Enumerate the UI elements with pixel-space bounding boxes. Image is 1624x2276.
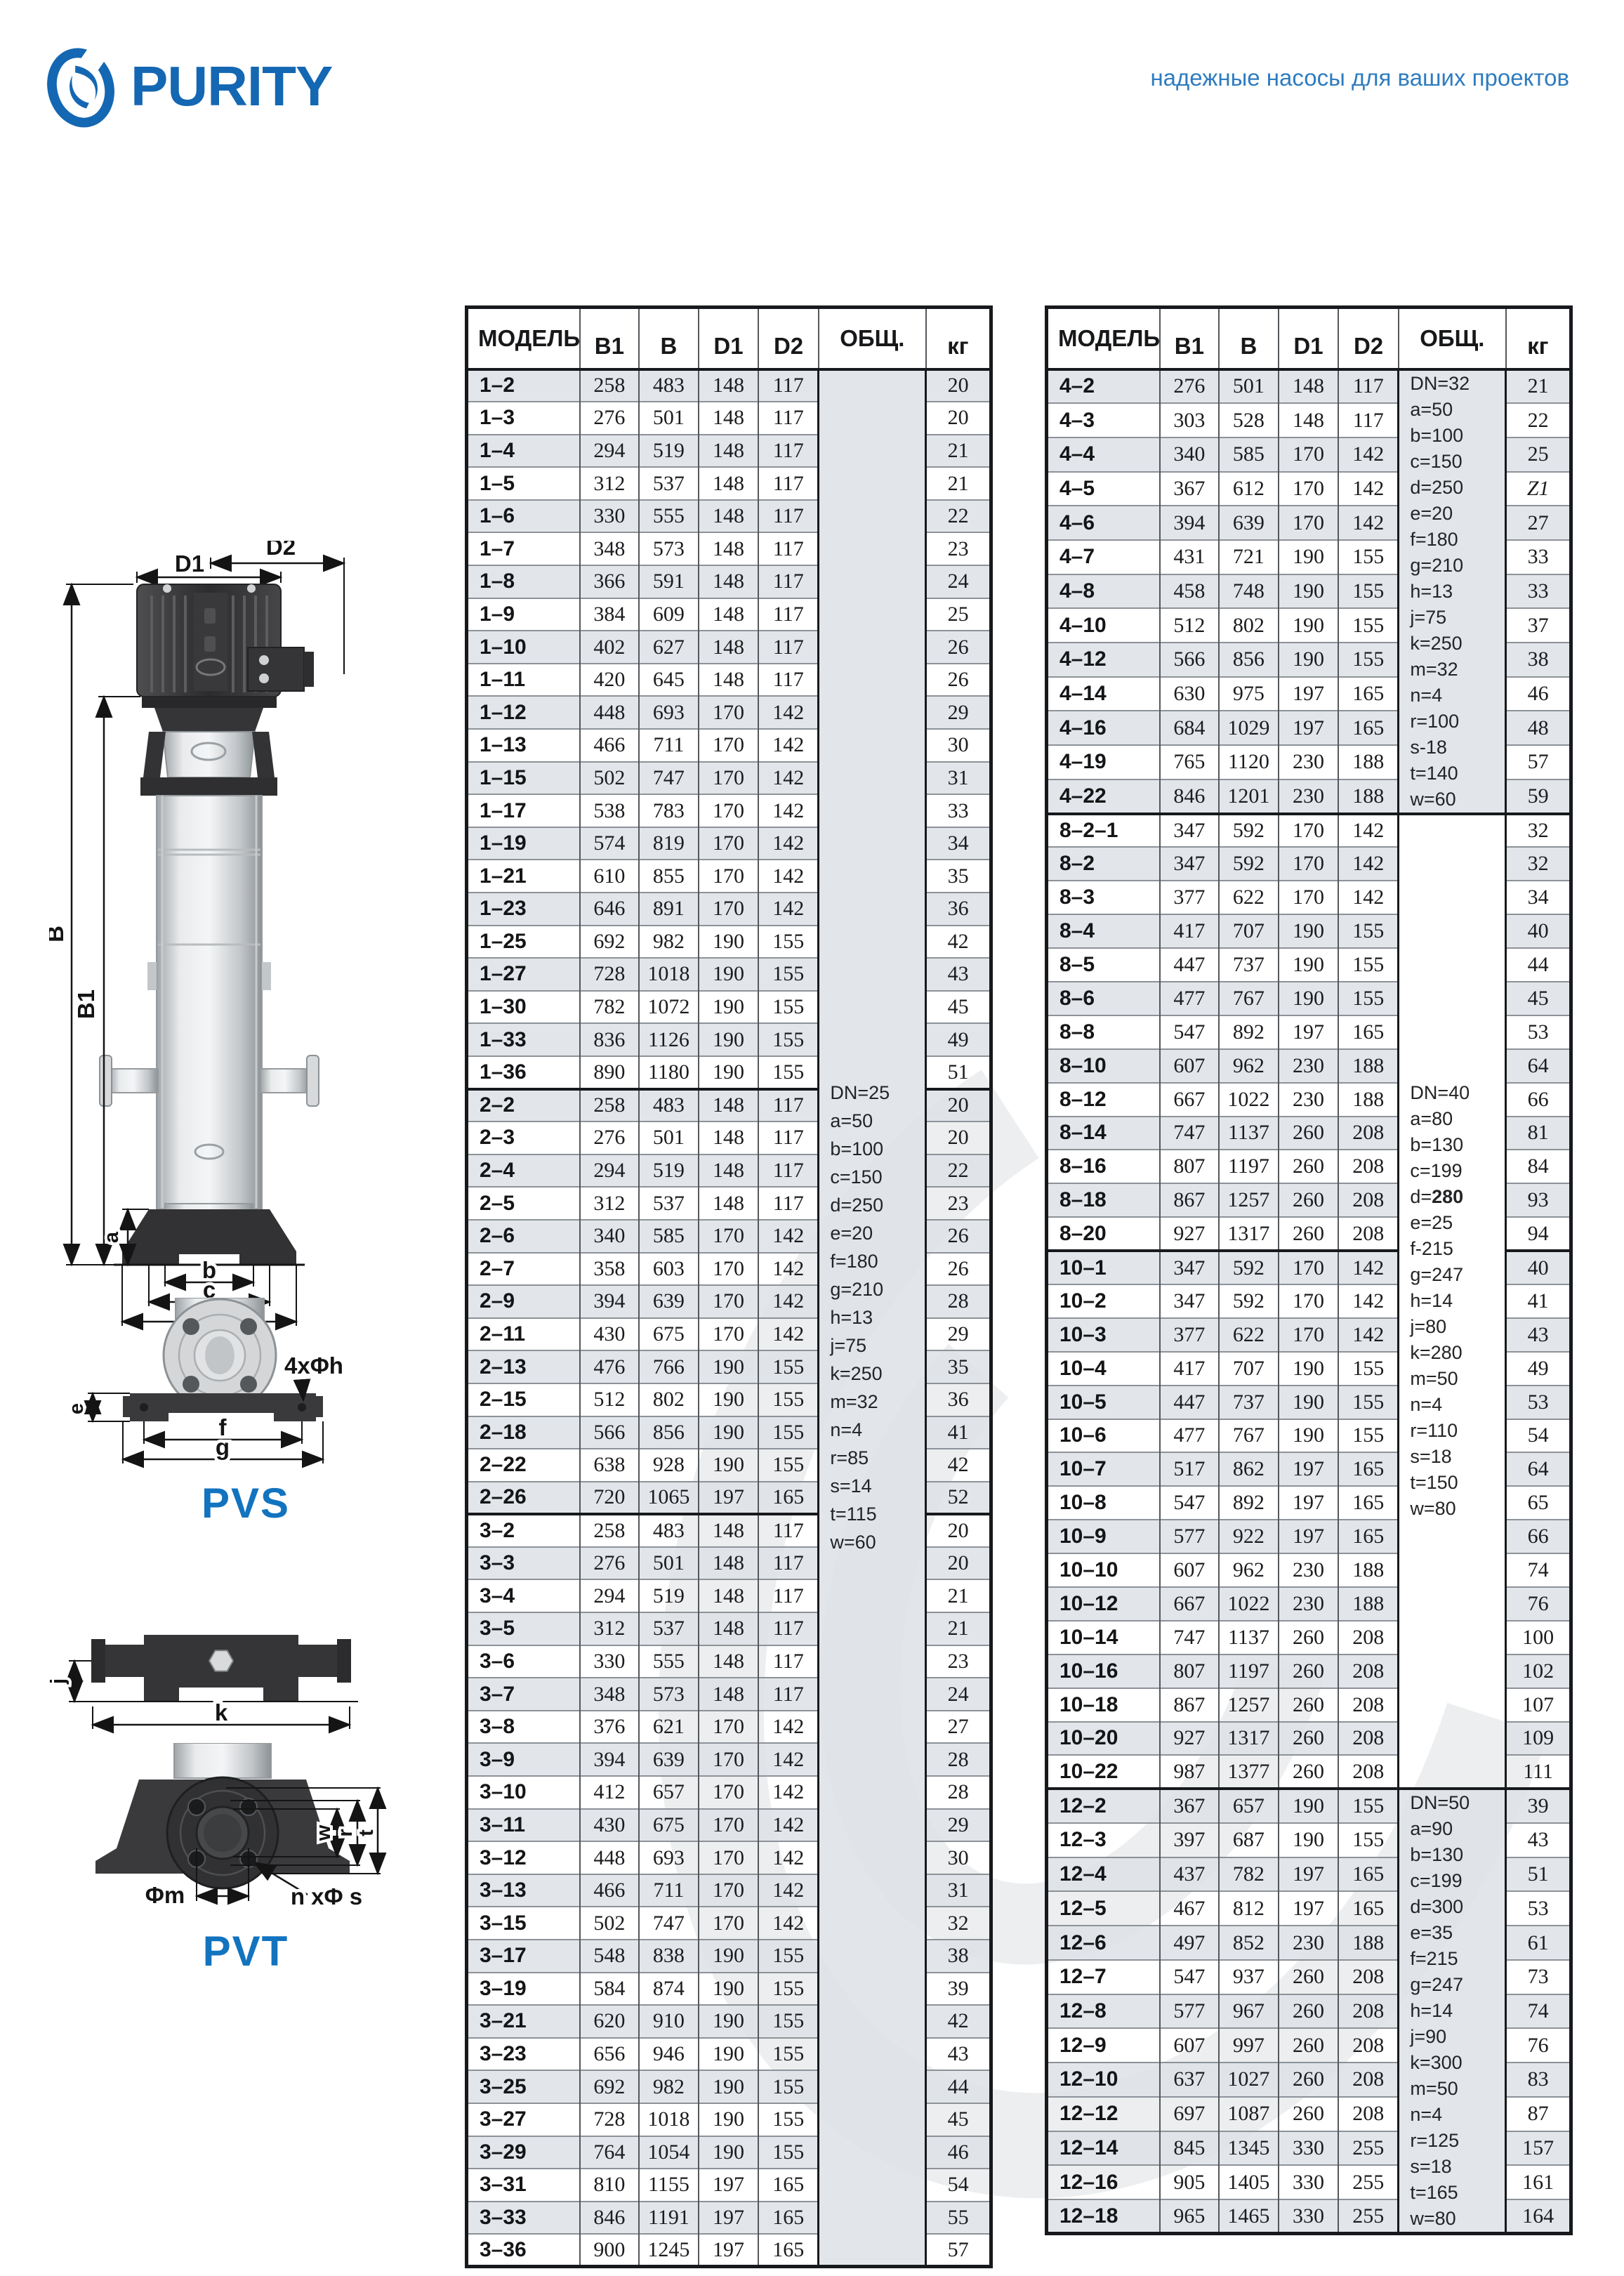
- value-cell: 170: [699, 860, 759, 893]
- value-cell: 802: [639, 1383, 699, 1416]
- value-cell: 190: [1279, 1789, 1339, 1823]
- value-cell: 348: [580, 532, 640, 565]
- model-cell: 12–14: [1047, 2131, 1160, 2166]
- table-row: 1–2258483148117DN=25a=50b=100c=150d=250e…: [467, 369, 991, 402]
- value-cell: 376: [580, 1711, 640, 1744]
- value-cell: 566: [580, 1416, 640, 1449]
- value-cell: 502: [580, 1907, 640, 1940]
- pvt-flange-view-diagram: w r t Φm n xΦ s: [49, 1743, 442, 1926]
- value-cell: 155: [1338, 540, 1399, 574]
- value-cell: 170: [1279, 506, 1339, 540]
- kg-cell: 20: [926, 1547, 991, 1580]
- value-cell: 537: [639, 1187, 699, 1220]
- dim-phi-m: Φm: [145, 1882, 185, 1908]
- value-cell: 170: [699, 827, 759, 860]
- value-cell: 155: [758, 1973, 819, 2006]
- value-cell: 230: [1279, 745, 1339, 780]
- value-cell: 1072: [639, 991, 699, 1024]
- value-cell: 394: [580, 1285, 640, 1318]
- value-cell: 190: [699, 2103, 759, 2136]
- value-cell: 890: [580, 1056, 640, 1089]
- value-cell: 687: [1219, 1823, 1279, 1857]
- model-cell: 3–21: [467, 2005, 580, 2038]
- column-header: D2: [1338, 308, 1399, 369]
- value-cell: 258: [580, 1514, 640, 1547]
- model-cell: 8–10: [1047, 1049, 1160, 1083]
- value-cell: 190: [1279, 540, 1339, 574]
- model-cell: 10–12: [1047, 1587, 1160, 1621]
- value-cell: 255: [1338, 2165, 1399, 2199]
- value-cell: 501: [639, 1121, 699, 1155]
- kg-cell: 40: [1506, 1251, 1571, 1284]
- model-cell: 1–13: [467, 729, 580, 762]
- model-cell: 8–12: [1047, 1083, 1160, 1117]
- header-row: МОДЕЛЬB1BD1D2ОБЩ.кг: [1047, 308, 1571, 369]
- value-cell: 501: [639, 402, 699, 435]
- value-cell: 170: [699, 1841, 759, 1874]
- model-cell: 3–2: [467, 1514, 580, 1547]
- dim-e: e: [65, 1403, 88, 1414]
- value-cell: 208: [1338, 1150, 1399, 1183]
- value-cell: 142: [1338, 1318, 1399, 1352]
- value-cell: 155: [758, 1056, 819, 1089]
- value-cell: 609: [639, 598, 699, 631]
- value-cell: 555: [639, 500, 699, 533]
- model-cell: 8–4: [1047, 914, 1160, 948]
- value-cell: 148: [699, 467, 759, 500]
- column-header: B: [1219, 308, 1279, 369]
- column-header: D1: [1279, 308, 1339, 369]
- note-line: j=75: [830, 1331, 925, 1360]
- kg-cell: 59: [1506, 780, 1571, 814]
- kg-cell: 40: [1506, 914, 1571, 948]
- model-cell: 10–16: [1047, 1655, 1160, 1688]
- value-cell: 148: [699, 500, 759, 533]
- value-cell: 1345: [1219, 2131, 1279, 2166]
- model-cell: 3–13: [467, 1874, 580, 1907]
- value-cell: 260: [1279, 1217, 1339, 1251]
- value-cell: 188: [1338, 745, 1399, 780]
- value-cell: 142: [1338, 814, 1399, 848]
- kg-cell: 41: [1506, 1284, 1571, 1318]
- kg-cell: 65: [1506, 1486, 1571, 1520]
- value-cell: 155: [1338, 982, 1399, 1015]
- value-cell: 838: [639, 1940, 699, 1973]
- model-cell: 1–25: [467, 926, 580, 959]
- value-cell: 394: [1160, 506, 1220, 540]
- value-cell: 845: [1160, 2131, 1220, 2166]
- note-line: k=300: [1410, 2050, 1505, 2076]
- kg-cell: 49: [926, 1023, 991, 1056]
- value-cell: 142: [758, 827, 819, 860]
- value-cell: 165: [1338, 677, 1399, 711]
- model-cell: 8–20: [1047, 1217, 1160, 1251]
- value-cell: 622: [1219, 881, 1279, 914]
- column-header: B: [639, 308, 699, 369]
- model-cell: 8–3: [1047, 881, 1160, 914]
- note-line: n=4: [1410, 2102, 1505, 2128]
- kg-cell: 23: [926, 1187, 991, 1220]
- model-cell: 1–21: [467, 860, 580, 893]
- dimensions-note-cell: DN=40a=80b=130c=199d=280e=25f-215g=247h=…: [1399, 814, 1506, 1789]
- kg-cell: 84: [1506, 1150, 1571, 1183]
- value-cell: 447: [1160, 1386, 1220, 1419]
- value-cell: 155: [1338, 1352, 1399, 1386]
- value-cell: 170: [699, 1318, 759, 1351]
- value-cell: 855: [639, 860, 699, 893]
- model-cell: 2–13: [467, 1350, 580, 1383]
- dimensions-note-cell: DN=50a=90b=130c=199d=300e=35f=215g=247h=…: [1399, 1789, 1506, 2234]
- model-cell: 2–15: [467, 1383, 580, 1416]
- kg-cell: 81: [1506, 1117, 1571, 1150]
- note-line: d=300: [1410, 1894, 1505, 1920]
- value-cell: 170: [699, 794, 759, 827]
- model-cell: 4–7: [1047, 540, 1160, 574]
- note-line: e=20: [830, 1219, 925, 1247]
- value-cell: 117: [758, 532, 819, 565]
- model-cell: 12–3: [1047, 1823, 1160, 1857]
- model-cell: 10–9: [1047, 1520, 1160, 1553]
- value-cell: 312: [580, 1187, 640, 1220]
- dim-n-phi-s: n xΦ s: [291, 1883, 362, 1909]
- value-cell: 294: [580, 435, 640, 468]
- value-cell: 430: [580, 1809, 640, 1842]
- value-cell: 693: [639, 1841, 699, 1874]
- value-cell: 117: [758, 1678, 819, 1711]
- value-cell: 170: [1279, 1318, 1339, 1352]
- value-cell: 512: [1160, 608, 1220, 643]
- column-header: ОБЩ.: [819, 308, 926, 369]
- value-cell: 721: [1219, 540, 1279, 574]
- value-cell: 197: [1279, 1015, 1339, 1049]
- model-cell: 8–5: [1047, 948, 1160, 982]
- dimensions-note-cell: DN=25a=50b=100c=150d=250e=20f=180g=210h=…: [819, 369, 926, 2267]
- kg-cell: 53: [1506, 1015, 1571, 1049]
- value-cell: 117: [758, 402, 819, 435]
- kg-cell: 21: [926, 467, 991, 500]
- value-cell: 190: [1279, 982, 1339, 1015]
- kg-cell: 31: [926, 1874, 991, 1907]
- column-header: D1: [699, 308, 759, 369]
- value-cell: 155: [1338, 914, 1399, 948]
- value-cell: 483: [639, 369, 699, 402]
- value-cell: 197: [699, 2169, 759, 2202]
- kg-cell: 61: [1506, 1926, 1571, 1960]
- value-cell: 448: [580, 1841, 640, 1874]
- value-cell: 728: [580, 958, 640, 991]
- value-cell: 467: [1160, 1891, 1220, 1926]
- value-cell: 347: [1160, 847, 1220, 881]
- value-cell: 142: [758, 1743, 819, 1776]
- value-cell: 190: [699, 2136, 759, 2169]
- value-cell: 260: [1279, 1621, 1339, 1655]
- kg-cell: 22: [926, 1155, 991, 1188]
- kg-cell: 39: [1506, 1789, 1571, 1823]
- note-line: f-215: [1410, 1236, 1505, 1262]
- note-line: DN=25: [830, 1079, 925, 1107]
- note-line: k=250: [830, 1360, 925, 1388]
- value-cell: 620: [580, 2005, 640, 2038]
- value-cell: 867: [1160, 1688, 1220, 1722]
- value-cell: 1465: [1219, 2199, 1279, 2234]
- value-cell: 260: [1279, 1755, 1339, 1789]
- kg-cell: 102: [1506, 1655, 1571, 1688]
- value-cell: 165: [1338, 1520, 1399, 1553]
- model-cell: 2–11: [467, 1318, 580, 1351]
- value-cell: 190: [699, 1023, 759, 1056]
- value-cell: 675: [639, 1318, 699, 1351]
- value-cell: 208: [1338, 2097, 1399, 2131]
- value-cell: 747: [1160, 1117, 1220, 1150]
- value-cell: 519: [639, 435, 699, 468]
- note-line: n=4: [1410, 1392, 1505, 1418]
- kg-cell: 42: [926, 1449, 991, 1482]
- value-cell: 170: [699, 1809, 759, 1842]
- column-header: МОДЕЛЬ: [1047, 308, 1160, 369]
- value-cell: 190: [699, 2070, 759, 2103]
- kg-cell: 34: [926, 827, 991, 860]
- right-spec-table: МОДЕЛЬB1BD1D2ОБЩ.кг4–2276501148117DN=32a…: [1045, 305, 1573, 2235]
- value-cell: 155: [758, 2136, 819, 2169]
- kg-cell: 66: [1506, 1520, 1571, 1553]
- value-cell: 148: [699, 402, 759, 435]
- value-cell: 142: [1338, 438, 1399, 472]
- value-cell: 190: [699, 1350, 759, 1383]
- value-cell: 190: [699, 1940, 759, 1973]
- value-cell: 190: [699, 1056, 759, 1089]
- note-line: f=180: [830, 1247, 925, 1275]
- dimensions-note: DN=50a=90b=130c=199d=300e=35f=215g=247h=…: [1399, 1790, 1505, 2232]
- value-cell: 330: [1279, 2131, 1339, 2166]
- note-line: f=215: [1410, 1946, 1505, 1972]
- value-cell: 255: [1338, 2199, 1399, 2234]
- value-cell: 573: [639, 532, 699, 565]
- value-cell: 142: [758, 696, 819, 729]
- value-cell: 190: [1279, 948, 1339, 982]
- note-line: s=18: [1410, 1444, 1505, 1470]
- kg-cell: 52: [926, 1482, 991, 1515]
- note-line: m=50: [1410, 1366, 1505, 1392]
- value-cell: 170: [1279, 1251, 1339, 1284]
- value-cell: 170: [699, 1285, 759, 1318]
- kg-cell: 100: [1506, 1621, 1571, 1655]
- kg-cell: 43: [926, 958, 991, 991]
- dim-b1: B1: [73, 989, 99, 1019]
- value-cell: 767: [1219, 982, 1279, 1015]
- note-line: m=32: [1410, 657, 1505, 683]
- model-cell: 4–5: [1047, 472, 1160, 506]
- value-cell: 1137: [1219, 1117, 1279, 1150]
- value-cell: 155: [758, 991, 819, 1024]
- value-cell: 874: [639, 1973, 699, 2006]
- model-cell: 10–22: [1047, 1755, 1160, 1789]
- model-cell: 10–1: [1047, 1251, 1160, 1284]
- kg-cell: 28: [926, 1743, 991, 1776]
- value-cell: 384: [580, 598, 640, 631]
- value-cell: 967: [1219, 1994, 1279, 2029]
- value-cell: 782: [580, 991, 640, 1024]
- value-cell: 783: [639, 794, 699, 827]
- kg-cell: 42: [926, 2005, 991, 2038]
- value-cell: 737: [1219, 1386, 1279, 1419]
- value-cell: 692: [580, 926, 640, 959]
- value-cell: 148: [699, 1547, 759, 1580]
- dim-k: k: [215, 1699, 228, 1725]
- model-cell: 1–17: [467, 794, 580, 827]
- value-cell: 639: [1219, 506, 1279, 540]
- value-cell: 630: [1160, 677, 1220, 711]
- kg-cell: 64: [1506, 1049, 1571, 1083]
- model-cell: 4–22: [1047, 780, 1160, 814]
- kg-cell: 76: [1506, 1587, 1571, 1621]
- kg-cell: 28: [926, 1776, 991, 1809]
- value-cell: 148: [699, 565, 759, 598]
- value-cell: 170: [699, 1220, 759, 1253]
- kg-cell: 29: [926, 1318, 991, 1351]
- value-cell: 312: [580, 467, 640, 500]
- value-cell: 190: [1279, 914, 1339, 948]
- kg-cell: 74: [1506, 1994, 1571, 2029]
- value-cell: 765: [1160, 745, 1220, 780]
- value-cell: 466: [580, 729, 640, 762]
- value-cell: 117: [758, 598, 819, 631]
- note-line: h=13: [830, 1303, 925, 1331]
- value-cell: 737: [1219, 948, 1279, 982]
- value-cell: 190: [699, 1449, 759, 1482]
- model-cell: 1–11: [467, 664, 580, 697]
- value-cell: 165: [1338, 1015, 1399, 1049]
- kg-cell: 25: [1506, 438, 1571, 472]
- note-line: h=14: [1410, 1288, 1505, 1314]
- value-cell: 117: [758, 664, 819, 697]
- value-cell: 260: [1279, 1722, 1339, 1756]
- note-line: a=80: [1410, 1106, 1505, 1132]
- model-cell: 1–5: [467, 467, 580, 500]
- value-cell: 142: [758, 1874, 819, 1907]
- value-cell: 260: [1279, 2028, 1339, 2063]
- kg-cell: 28: [926, 1285, 991, 1318]
- model-cell: 3–10: [467, 1776, 580, 1809]
- kg-cell: 157: [1506, 2131, 1571, 2166]
- note-line: m=50: [1410, 2076, 1505, 2102]
- value-cell: 170: [1279, 881, 1339, 914]
- value-cell: 170: [699, 893, 759, 926]
- value-cell: 537: [639, 467, 699, 500]
- value-cell: 155: [758, 958, 819, 991]
- value-cell: 258: [580, 369, 640, 402]
- kg-cell: 24: [926, 565, 991, 598]
- note-line: b=100: [1410, 423, 1505, 449]
- kg-cell: 66: [1506, 1083, 1571, 1117]
- value-cell: 188: [1338, 1926, 1399, 1960]
- model-cell: 3–5: [467, 1612, 580, 1645]
- value-cell: 148: [699, 1121, 759, 1155]
- value-cell: 155: [758, 2070, 819, 2103]
- kg-cell: 87: [1506, 2097, 1571, 2131]
- value-cell: 148: [699, 1514, 759, 1547]
- value-cell: 190: [1279, 1823, 1339, 1857]
- model-cell: 12–18: [1047, 2199, 1160, 2234]
- value-cell: 965: [1160, 2199, 1220, 2234]
- pump-cylinder: [157, 796, 262, 1209]
- value-cell: 747: [1160, 1621, 1220, 1655]
- value-cell: 188: [1338, 780, 1399, 814]
- value-cell: 155: [1338, 948, 1399, 982]
- value-cell: 987: [1160, 1755, 1220, 1789]
- value-cell: 836: [580, 1023, 640, 1056]
- value-cell: 208: [1338, 2028, 1399, 2063]
- value-cell: 208: [1338, 1117, 1399, 1150]
- kg-cell: 109: [1506, 1722, 1571, 1756]
- value-cell: 592: [1219, 847, 1279, 881]
- value-cell: 117: [758, 1612, 819, 1645]
- model-cell: 1–9: [467, 598, 580, 631]
- value-cell: 190: [699, 2038, 759, 2071]
- value-cell: 190: [1279, 1386, 1339, 1419]
- purity-logo-icon: [41, 45, 124, 128]
- model-cell: 3–31: [467, 2169, 580, 2202]
- note-line: r=100: [1410, 709, 1505, 735]
- kg-cell: 32: [1506, 814, 1571, 848]
- value-cell: 607: [1160, 1049, 1220, 1083]
- model-cell: 2–4: [467, 1155, 580, 1188]
- value-cell: 548: [580, 1940, 640, 1973]
- model-cell: 12–10: [1047, 2063, 1160, 2097]
- value-cell: 190: [1279, 574, 1339, 609]
- model-cell: 3–8: [467, 1711, 580, 1744]
- note-line: DN=40: [1410, 1080, 1505, 1106]
- value-cell: 1018: [639, 2103, 699, 2136]
- kg-cell: 21: [926, 1612, 991, 1645]
- note-line: t=150: [1410, 1470, 1505, 1496]
- note-line: b=100: [830, 1135, 925, 1163]
- kg-cell: 21: [1506, 369, 1571, 404]
- value-cell: 347: [1160, 814, 1220, 848]
- value-cell: 764: [580, 2136, 640, 2169]
- model-cell: 3–9: [467, 1743, 580, 1776]
- note-line: DN=32: [1410, 371, 1505, 397]
- model-cell: 3–25: [467, 2070, 580, 2103]
- value-cell: 1197: [1219, 1655, 1279, 1688]
- model-cell: 4–4: [1047, 438, 1160, 472]
- model-cell: 3–19: [467, 1973, 580, 2006]
- value-cell: 117: [758, 1547, 819, 1580]
- value-cell: 538: [580, 794, 640, 827]
- kg-cell: 76: [1506, 2028, 1571, 2063]
- value-cell: 927: [1160, 1722, 1220, 1756]
- dimensions-note: DN=25a=50b=100c=150d=250e=20f=180g=210h=…: [819, 1079, 925, 1556]
- kg-cell: 49: [1506, 1352, 1571, 1386]
- value-cell: 190: [699, 1383, 759, 1416]
- model-cell: 3–17: [467, 1940, 580, 1973]
- value-cell: 412: [580, 1776, 640, 1809]
- value-cell: 997: [1219, 2028, 1279, 2063]
- value-cell: 330: [580, 1645, 640, 1678]
- kg-cell: 43: [1506, 1318, 1571, 1352]
- value-cell: 639: [639, 1285, 699, 1318]
- kg-cell: 27: [1506, 506, 1571, 540]
- note-line: a=50: [830, 1107, 925, 1135]
- model-cell: 2–26: [467, 1482, 580, 1515]
- value-cell: 810: [580, 2169, 640, 2202]
- model-cell: 4–3: [1047, 403, 1160, 438]
- value-cell: 747: [639, 1907, 699, 1940]
- value-cell: 148: [699, 1155, 759, 1188]
- value-cell: 667: [1160, 1587, 1220, 1621]
- note-line: DN=50: [1410, 1790, 1505, 1816]
- value-cell: 165: [1338, 1857, 1399, 1892]
- model-cell: 3–6: [467, 1645, 580, 1678]
